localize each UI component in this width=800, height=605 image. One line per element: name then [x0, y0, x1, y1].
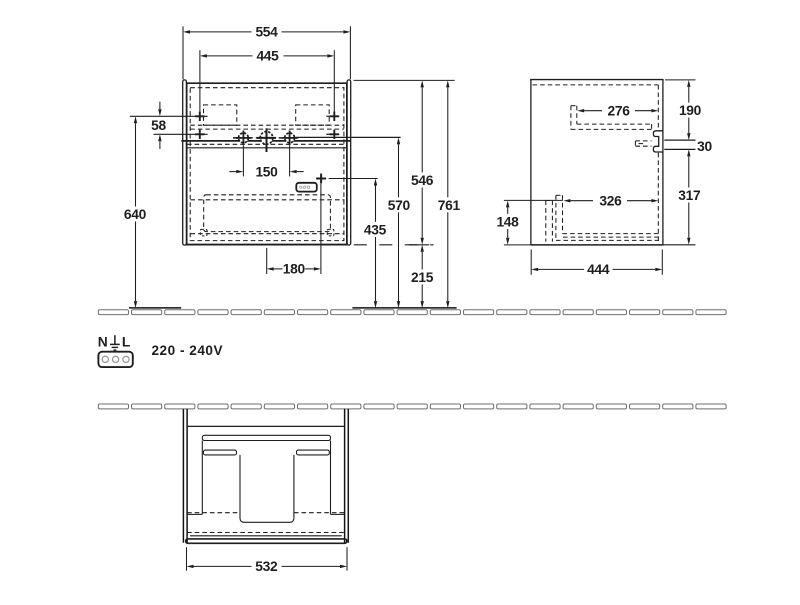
svg-text:435: 435 — [364, 223, 387, 238]
svg-text:148: 148 — [496, 214, 519, 229]
svg-text:546: 546 — [411, 173, 434, 188]
svg-text:215: 215 — [411, 270, 434, 285]
svg-text:30: 30 — [697, 139, 712, 154]
svg-text:554: 554 — [255, 25, 278, 40]
svg-text:445: 445 — [256, 49, 279, 64]
svg-text:58: 58 — [151, 118, 166, 133]
svg-text:N: N — [98, 334, 108, 349]
svg-text:761: 761 — [438, 198, 461, 213]
svg-text:150: 150 — [255, 164, 278, 179]
svg-text:640: 640 — [124, 207, 147, 222]
svg-text:220 - 240V: 220 - 240V — [152, 343, 224, 358]
svg-text:326: 326 — [599, 193, 622, 208]
svg-text:532: 532 — [255, 559, 278, 574]
svg-text:570: 570 — [388, 198, 411, 213]
svg-text:317: 317 — [678, 188, 701, 203]
svg-text:276: 276 — [608, 103, 631, 118]
svg-text:190: 190 — [679, 103, 702, 118]
svg-text:180: 180 — [283, 262, 306, 277]
svg-text:444: 444 — [587, 262, 610, 277]
svg-text:L: L — [122, 334, 130, 349]
